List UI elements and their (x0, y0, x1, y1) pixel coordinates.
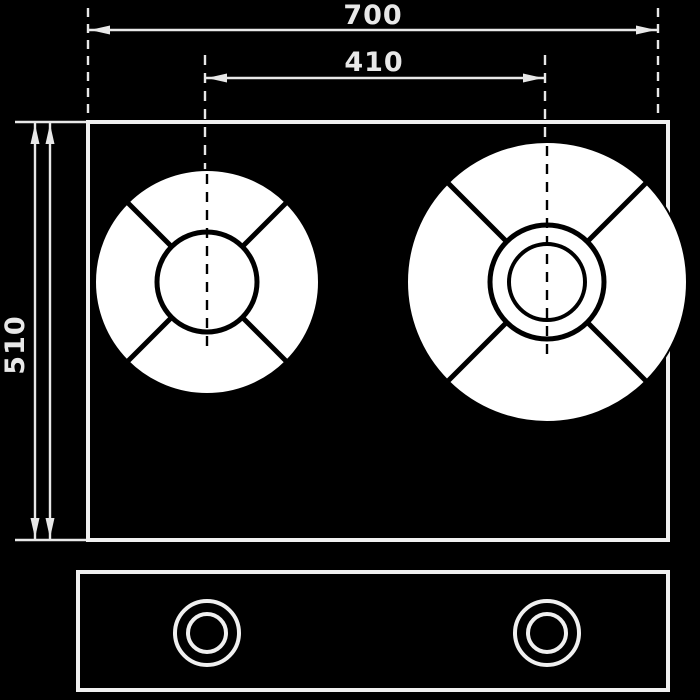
arrowhead-right-icon (523, 74, 543, 83)
burner-right (407, 142, 687, 422)
arrowhead-up-icon (46, 124, 55, 144)
control-panel (78, 572, 668, 690)
arrowhead-up-icon (31, 124, 40, 144)
arrowhead-left-icon (207, 74, 227, 83)
dimension-label-burner-spacing: 410 (344, 47, 403, 78)
dimension-burner-spacing: 410 (205, 47, 545, 83)
dimension-overall-depth: 510 (0, 122, 55, 540)
arrowhead-left-icon (90, 26, 110, 35)
arrowhead-down-icon (46, 518, 55, 538)
arrowhead-right-icon (636, 26, 656, 35)
dimension-overall-width: 700 (88, 0, 658, 35)
burner-left (95, 170, 319, 394)
dimension-label-overall-width: 700 (343, 0, 402, 31)
arrowhead-down-icon (31, 518, 40, 538)
hob-drawing: 700 410 510 (0, 0, 700, 700)
technical-drawing-canvas: 700 410 510 (0, 0, 700, 700)
dimension-label-overall-depth: 510 (0, 315, 31, 374)
